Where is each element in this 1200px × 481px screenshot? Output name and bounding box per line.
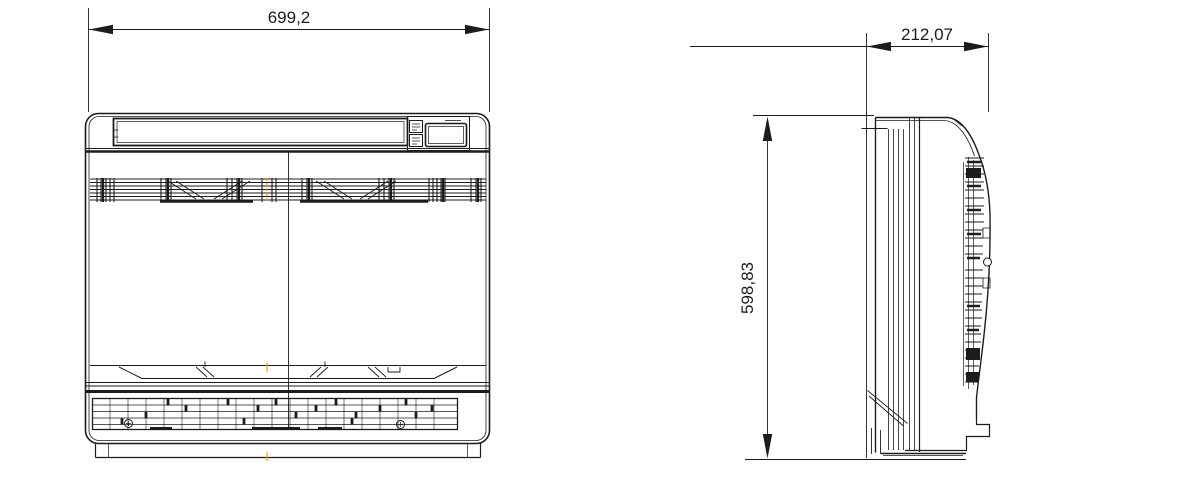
display-window-outer bbox=[426, 124, 467, 147]
front-body-outer bbox=[86, 114, 490, 444]
height-dimension: 598,83 bbox=[738, 116, 966, 460]
trapezoid-outline bbox=[119, 367, 457, 379]
lower-trapezoid-section bbox=[90, 362, 486, 379]
drawing-canvas: 699,2 bbox=[0, 0, 1200, 481]
side-top-edge-inner bbox=[876, 121, 975, 157]
front-view: 699,2 bbox=[86, 8, 490, 461]
depth-dimension-label: 212,07 bbox=[901, 25, 953, 44]
bottom-grille bbox=[93, 399, 458, 430]
grille-ticks-thick bbox=[103, 178, 478, 202]
side-view: 212,07 598,83 bbox=[690, 25, 992, 460]
side-diagonal-braces bbox=[868, 391, 908, 427]
side-grille-strip bbox=[964, 157, 992, 389]
side-louver-block-top bbox=[966, 168, 981, 178]
screw-left-icon bbox=[125, 420, 133, 428]
depth-arrow-left-icon bbox=[867, 42, 891, 51]
control-button-bottom bbox=[410, 135, 423, 147]
depth-arrow-right-icon bbox=[964, 42, 988, 51]
side-louver-block-bottom bbox=[966, 348, 980, 360]
front-base bbox=[96, 444, 481, 462]
grille-ticks-thin bbox=[97, 178, 481, 202]
depth-dimension: 212,07 bbox=[690, 25, 989, 458]
control-button-top bbox=[410, 121, 423, 133]
top-outlet-panel-outer bbox=[114, 119, 408, 146]
control-box-frame bbox=[408, 117, 470, 151]
bottom-grille-slats bbox=[93, 405, 457, 425]
height-arrow-top-icon bbox=[763, 117, 772, 142]
side-louver-block-lower bbox=[966, 372, 979, 382]
display-window-inner bbox=[429, 127, 464, 144]
height-dimension-label: 598,83 bbox=[738, 262, 757, 314]
width-arrow-right-icon bbox=[465, 25, 489, 34]
grille-slat-lines bbox=[90, 179, 486, 200]
side-top-seam bbox=[952, 118, 962, 126]
plinth-feet bbox=[109, 444, 468, 458]
trapezoid-details bbox=[196, 362, 400, 378]
side-base bbox=[868, 391, 990, 456]
width-dimension-label: 699,2 bbox=[268, 8, 311, 27]
lower-band-lines bbox=[86, 383, 490, 387]
technical-drawing: 699,2 bbox=[0, 0, 1200, 481]
height-arrow-bottom-icon bbox=[763, 434, 772, 459]
side-knob-circle bbox=[984, 258, 992, 266]
control-box bbox=[408, 117, 470, 151]
width-arrow-left-icon bbox=[89, 25, 113, 34]
side-front-profile bbox=[977, 215, 991, 419]
side-front-bottom-step bbox=[905, 419, 990, 451]
top-outlet-panel-inner bbox=[117, 122, 404, 143]
width-dimension: 699,2 bbox=[89, 8, 490, 112]
front-grille-band bbox=[90, 178, 486, 202]
back-panel-lines bbox=[889, 118, 915, 450]
plinth-outline bbox=[96, 444, 481, 458]
